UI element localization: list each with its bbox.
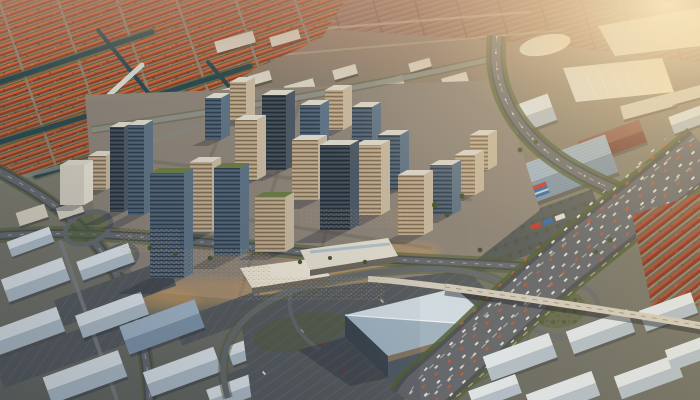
atmosphere xyxy=(0,0,700,400)
aerial-city-photo xyxy=(0,0,700,400)
city-render xyxy=(0,0,700,400)
sun-glare xyxy=(240,0,700,280)
